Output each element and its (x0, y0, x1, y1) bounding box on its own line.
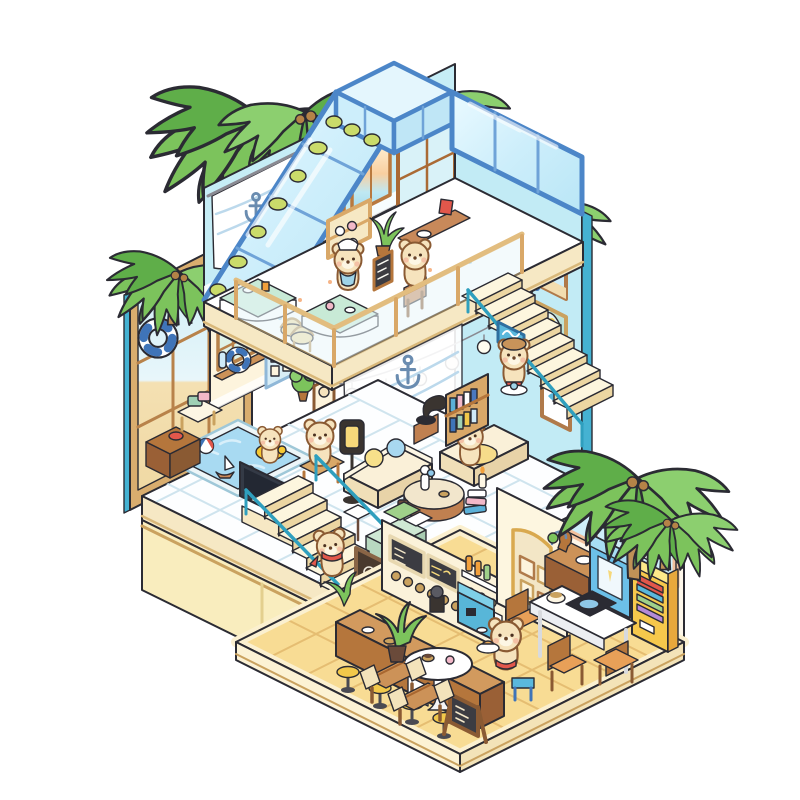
bear-with-tray (499, 338, 530, 395)
pillow-yellow (365, 449, 383, 467)
hot-pot (547, 592, 565, 603)
bear-waiter (333, 239, 364, 290)
coffee-grinder (430, 586, 444, 612)
scene-illustration: coffee (0, 0, 800, 800)
pillow-blue (387, 439, 405, 457)
flower-pot (548, 533, 558, 543)
beach-ball (199, 439, 214, 454)
bear-beach-cafe-svg: coffee (0, 0, 800, 800)
blue-stool (512, 678, 534, 688)
